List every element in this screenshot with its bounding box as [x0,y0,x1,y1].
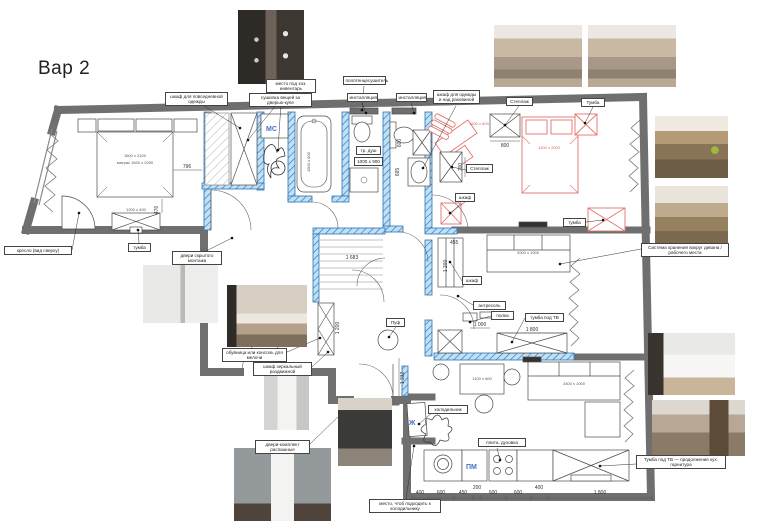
bathroom-tub: 1800 х 800 [297,116,338,228]
svg-text:455: 455 [450,240,459,246]
svg-text:2400 х 1000: 2400 х 1000 [563,381,586,386]
annotation-pouf: Пуф [386,318,405,327]
svg-text:800: 800 [501,143,510,149]
annotation-mirror-wardrobe: шкаф зеркальный раздвижной [253,362,312,376]
svg-text:1 683: 1 683 [346,255,359,261]
photo-living-room-1 [655,116,728,178]
svg-text:1800 х 800: 1800 х 800 [306,151,311,172]
photo-mirror-wardrobe [264,373,309,430]
svg-text:600: 600 [397,139,403,148]
bathroom-door-arc [398,232,428,262]
photo-hidden-door [143,265,218,323]
svg-text:600: 600 [514,490,523,496]
annotation-wardrobe-sink: шкаф для одежды и над раковиной [433,90,480,104]
svg-text:матрас 1600 х 2000: матрас 1600 х 2000 [117,160,154,165]
svg-text:700: 700 [458,163,464,172]
annotation-hidden-doors: двери скрытого монтажа [172,251,222,265]
kitchen [407,362,629,481]
annotation-wardrobe-red: шкаф [455,193,475,202]
living-room [438,235,570,362]
svg-text:1 332: 1 332 [400,372,406,385]
bedroom-closet-hatched [205,113,229,185]
annotation-shoe-console: обувница или консоль для мелочи [222,348,287,362]
annotation-storage-sofa: Система хранения вокруг дивана / рабочег… [641,243,729,257]
svg-text:1 800: 1 800 [526,327,539,333]
photo-kitchen-dining [652,400,745,456]
svg-text:1 200: 1 200 [335,322,341,335]
photo-kitchen-white [648,333,735,395]
photo-hall-console [227,285,307,347]
photo-bedroom-2 [588,25,676,87]
svg-text:Ж: Ж [408,420,416,427]
curtain-zigzag-living [569,258,580,346]
annotation-shower-size: 1000 х 900 [354,157,383,166]
bedroom-furniture [62,119,197,233]
svg-text:1 800: 1 800 [594,490,607,496]
photo-kitchen-brown [653,268,738,328]
photo-gray-door [234,448,331,521]
svg-text:400: 400 [416,490,425,496]
curtain-zigzag-red-room [629,120,640,192]
annotation-towel-rail: полотенцесушитель [343,76,386,85]
photo-laundry-room [238,10,304,84]
decor-sketch-corridor [264,144,285,178]
annotation-installation-1: инсталляция [347,93,378,102]
annotation-stove: плита, духовка [478,438,526,447]
annotation-cabinet-main: тумба [128,243,151,252]
annotation-shelf-inner: Стеллаж [466,164,493,173]
svg-text:600: 600 [437,490,446,496]
svg-text:1100 х 600: 1100 х 600 [472,376,492,381]
photo-bedroom-1 [494,25,582,87]
annotation-tv-kitchen: Тумба под ТВ — продолжение кух. гарнитур… [636,455,726,469]
svg-text:1 000: 1 000 [474,322,487,328]
photo-living-room-2 [655,186,728,246]
svg-text:1400 х 2000: 1400 х 2000 [538,145,561,150]
corridor-closet [231,113,257,185]
annotation-cabinet-top: Тумба [581,98,605,107]
annotation-household: место под хоз. инвентарь [266,79,316,93]
photo-workspace [338,398,392,466]
svg-text:1 200: 1 200 [443,260,449,273]
annotation-fridge-space: место, чтоб подходить к холодильнику [369,499,441,513]
svg-text:2000 х 1000: 2000 х 1000 [517,250,540,255]
annotation-fridge: холодильник [428,405,468,414]
svg-text:400: 400 [535,485,544,491]
annotation-installation-2: инсталляция [396,93,427,102]
curtain-zigzag-kitchen [624,370,634,442]
floor-plan-sheet: Вар 2 шкаф для повседневной одежды место… [0,0,770,527]
svg-text:450: 450 [459,490,468,496]
svg-text:476: 476 [154,206,160,215]
annotation-armchair: кресло (вид сверху) [4,246,72,255]
living-door-arc [440,295,474,329]
annotation-dryer: сушилка вещей за дверью-купе [249,93,312,107]
bedroom-door-arc [211,190,251,230]
svg-text:665: 665 [395,168,401,177]
svg-text:200: 200 [473,485,482,491]
annotation-mezzanine: антресоль [473,301,506,310]
annotation-shelf-small: полка [491,311,514,320]
washing-machine-area: МС [261,114,288,178]
svg-text:1600 х 600: 1600 х 600 [469,121,490,126]
annotation-cabinet-red: тумба [563,218,586,227]
svg-text:МС: МС [266,126,277,133]
svg-text:796: 796 [183,164,192,170]
annotation-wardrobe-living: шкаф [462,276,482,285]
svg-text:600: 600 [489,490,498,496]
annotation-shelf-top: Стеллаж [506,97,533,106]
annotation-shower-tray: тр. душ [356,146,381,155]
annotation-swing-doors: двери-комплект распашные [255,440,310,454]
svg-text:ПМ: ПМ [466,464,477,471]
annotation-everyday-wardrobe: шкаф для повседневной одежды [165,92,228,106]
annotation-tv-cabinet: тумба под ТВ [525,313,564,322]
svg-text:1200 х 400: 1200 х 400 [126,207,147,212]
svg-text:1600 х 2100: 1600 х 2100 [124,153,147,158]
